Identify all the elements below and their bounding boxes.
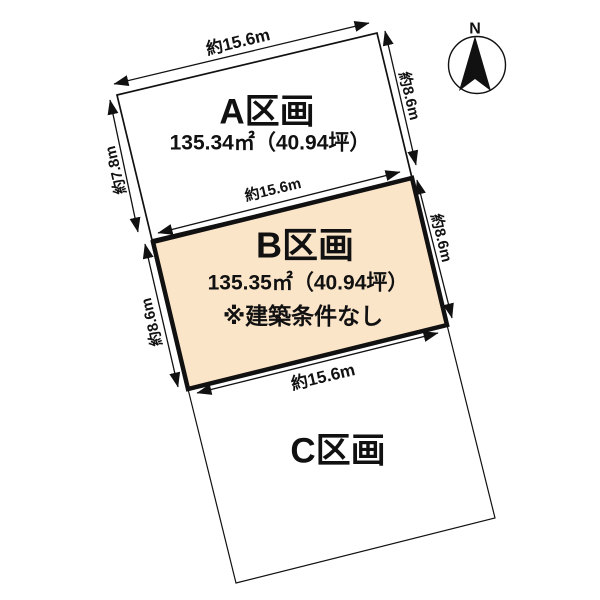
north-arrow-icon [459, 36, 491, 91]
dimension-label-a-right: 約8.6m [395, 70, 424, 122]
dimension-label-b-left: 約8.6m [137, 296, 166, 348]
plot-map-canvas: 約15.6m 約7.8m 約8.6m 約15.6m 約8.6m 約8.6m 約1… [0, 0, 600, 600]
plot-a-area: 135.34㎡（40.94坪） [170, 131, 371, 155]
north-label: N [469, 21, 481, 38]
plot-a-title: A区画 [219, 93, 314, 132]
plot-b-note: ※建築条件なし [223, 303, 383, 329]
plot-c-title: C区画 [290, 432, 385, 471]
north-compass: N [449, 21, 506, 94]
dimension-label-a-left: 約7.8m [101, 144, 130, 196]
plot-b-area: 135.35㎡（40.94坪） [208, 271, 409, 295]
land-plot-diagram: 約15.6m 約7.8m 約8.6m 約15.6m 約8.6m 約8.6m 約1… [0, 0, 600, 600]
plot-b-title: B区画 [256, 225, 354, 266]
dimension-label-a-top: 約15.6m [204, 24, 272, 59]
